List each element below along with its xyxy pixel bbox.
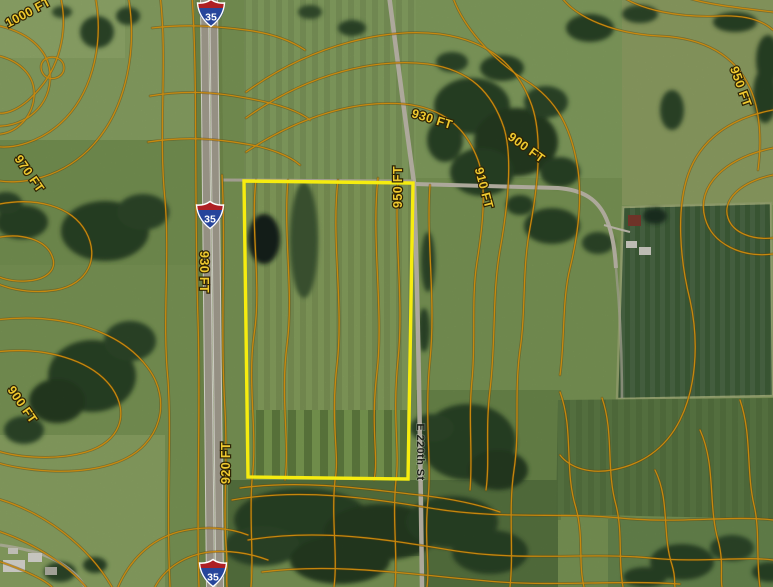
road-label: E 220th St — [414, 423, 426, 480]
map-viewport[interactable]: 1000 FT 970 FT 930 FT 920 FT 900 FT 930 … — [0, 0, 773, 587]
shield-number: 35 — [205, 12, 217, 24]
contour-label: 930 FT — [197, 251, 211, 293]
shield-number: 35 — [204, 214, 216, 226]
shield-number: 35 — [207, 572, 219, 584]
map-canvas[interactable]: 1000 FT 970 FT 930 FT 920 FT 900 FT 930 … — [0, 0, 773, 587]
contour-label: 950 FT — [391, 166, 405, 208]
satellite-texture — [0, 0, 773, 587]
contour-label: 920 FT — [219, 442, 233, 484]
